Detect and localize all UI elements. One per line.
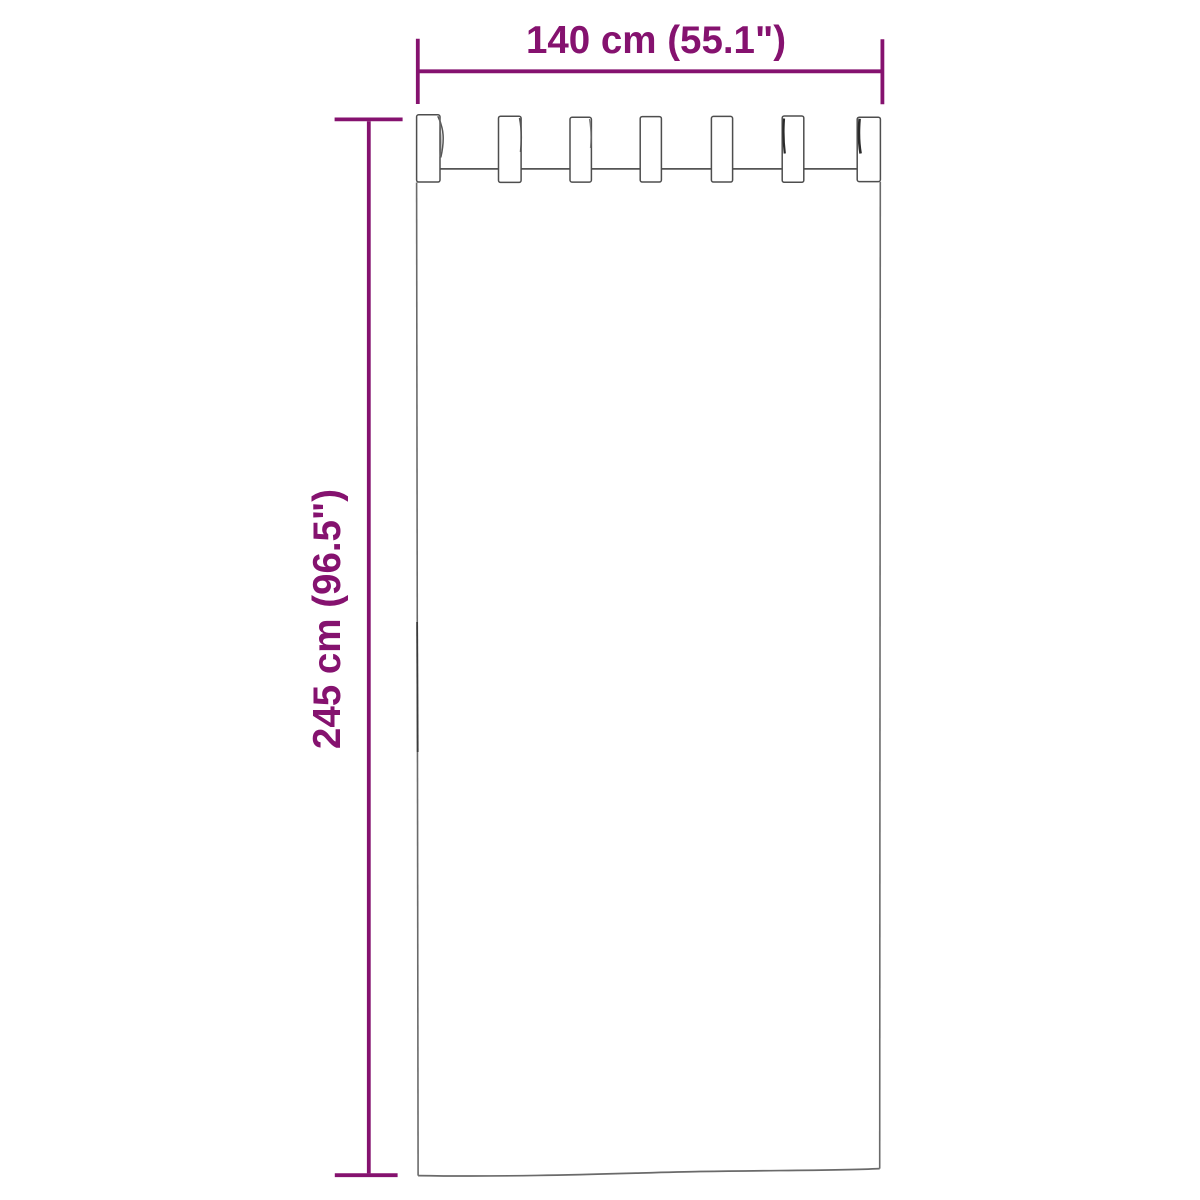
svg-text:140 cm (55.1"): 140 cm (55.1"): [526, 19, 786, 62]
svg-text:245 cm (96.5"): 245 cm (96.5"): [306, 489, 349, 749]
